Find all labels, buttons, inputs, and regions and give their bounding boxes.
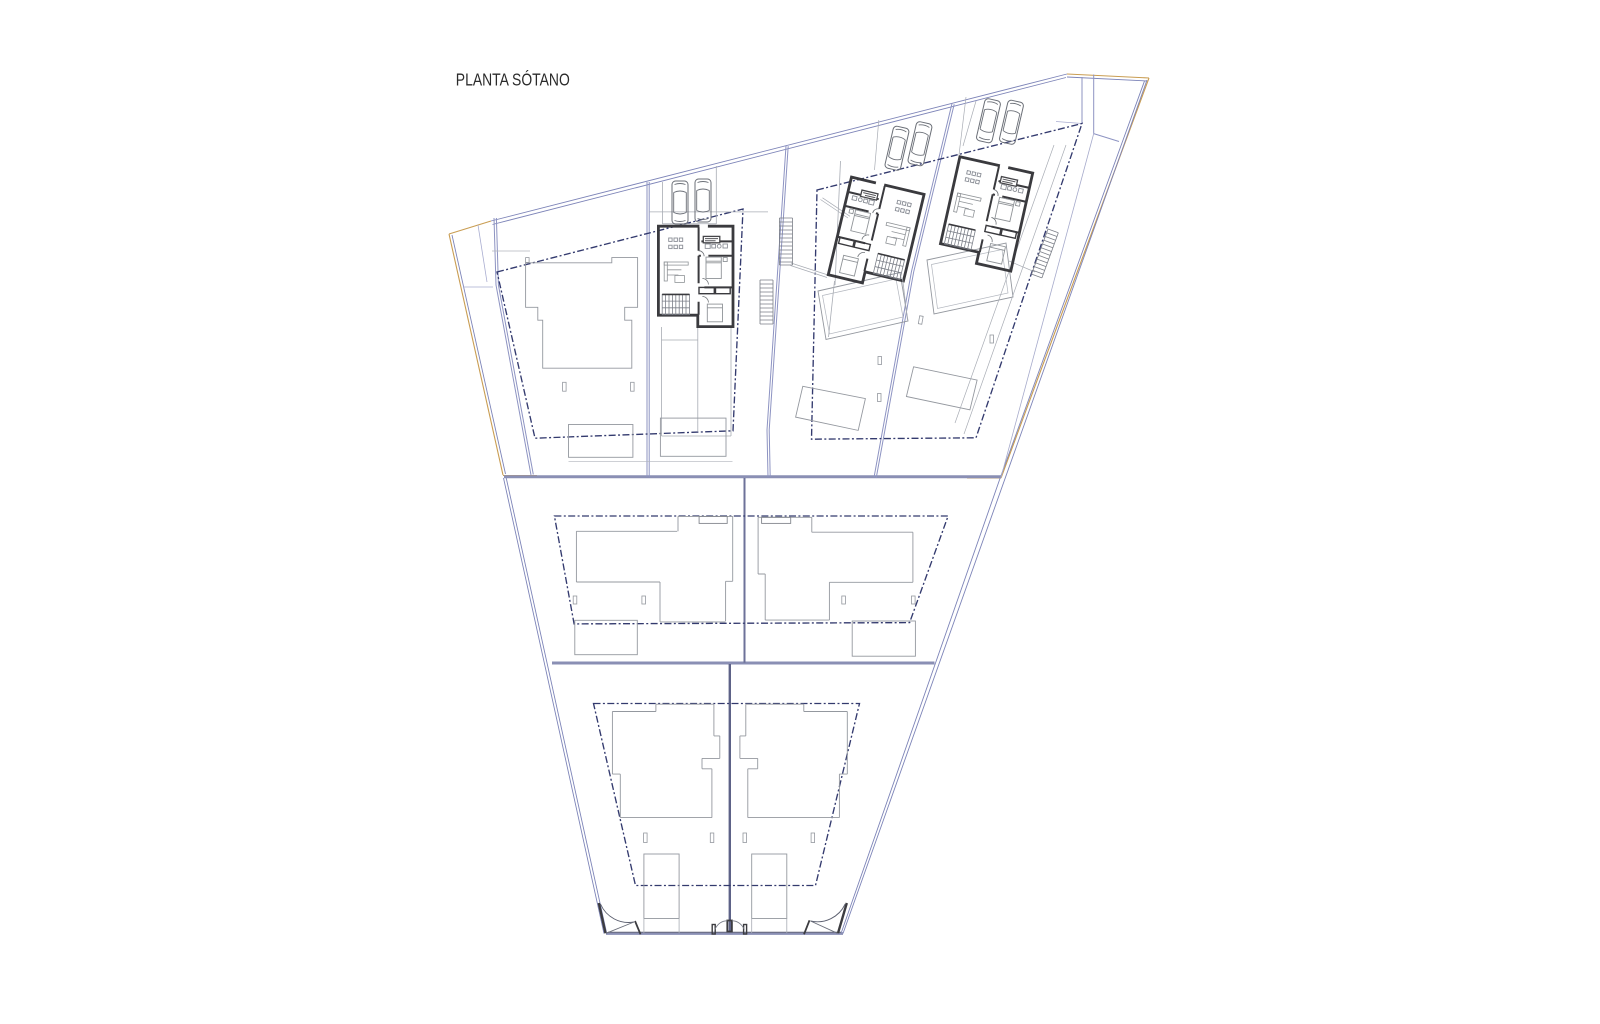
svg-text:PLANTA SÓTANO: PLANTA SÓTANO [456,68,570,89]
